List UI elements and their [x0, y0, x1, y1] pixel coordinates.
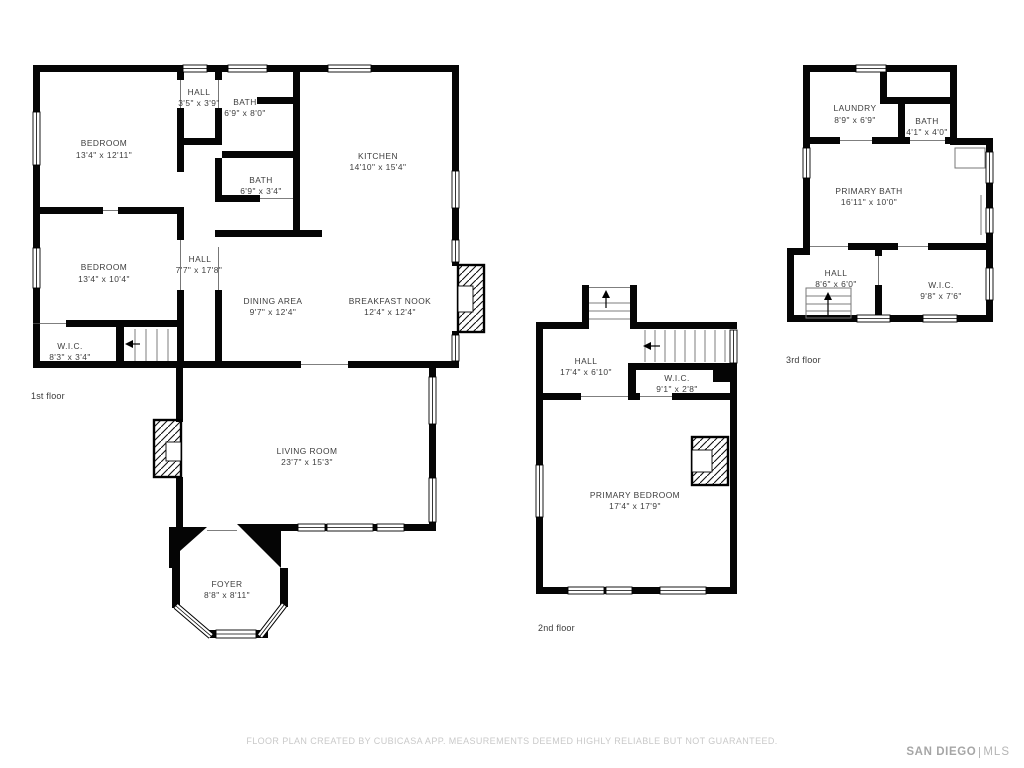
logo-separator	[979, 747, 980, 758]
room-label-dining: DINING AREA	[244, 296, 303, 306]
room-label-hall-third: HALL	[825, 268, 848, 278]
room-dims-bedroom-lower: 13'4" x 10'4"	[78, 274, 130, 284]
second-floor-label: 2nd floor	[538, 623, 575, 633]
room-dims-nook: 12'4" x 12'4"	[364, 307, 416, 317]
room-dims-foyer: 8'8" x 8'11"	[204, 590, 250, 600]
first-floor-label: 1st floor	[31, 391, 65, 401]
sandiego-mls-logo: SAN DIEGO MLS	[906, 746, 1010, 758]
third-floor-stairs	[806, 288, 851, 318]
breakfast-nook-bay	[458, 265, 484, 332]
floor-plan-drawing: BEDROOM 13'4" x 12'11" HALL 3'5" x 3'9" …	[0, 0, 1024, 768]
room-label-laundry: LAUNDRY	[833, 103, 876, 113]
room-label-living: LIVING ROOM	[277, 446, 338, 456]
room-dims-wic-first: 8'3" x 3'4"	[49, 352, 91, 362]
room-label-nook: BREAKFAST NOOK	[349, 296, 431, 306]
room-label-wic-first: W.I.C.	[57, 341, 83, 351]
room-dims-laundry: 8'9" x 6'9"	[834, 115, 876, 125]
room-dims-kitchen: 14'10" x 15'4"	[350, 162, 407, 172]
logo-brand-text: SAN DIEGO	[906, 746, 976, 758]
floor-plan-page: BEDROOM 13'4" x 12'11" HALL 3'5" x 3'9" …	[0, 0, 1024, 768]
room-label-wic-third: W.I.C.	[928, 280, 954, 290]
first-floor-plan: BEDROOM 13'4" x 12'11" HALL 3'5" x 3'9" …	[31, 65, 484, 638]
stair-left-arrow-icon	[643, 342, 651, 350]
second-floor-door-openings	[581, 288, 672, 397]
room-label-hall-small: HALL	[188, 87, 211, 97]
room-label-bath-top: BATH	[233, 97, 257, 107]
third-floor-label: 3rd floor	[786, 355, 821, 365]
room-label-bedroom-top: BEDROOM	[81, 138, 127, 148]
room-dims-bedroom-top: 13'4" x 12'11"	[76, 150, 132, 160]
second-floor-stairs-up	[589, 290, 630, 319]
room-label-hall-main: HALL	[189, 254, 212, 264]
room-label-hall-second: HALL	[575, 356, 598, 366]
room-label-bath-third: BATH	[915, 116, 939, 126]
room-label-primary-bedroom: PRIMARY BEDROOM	[590, 490, 680, 500]
room-dims-hall-small: 3'5" x 3'9"	[178, 98, 220, 108]
room-dims-bath-mid: 6'9" x 3'4"	[240, 186, 282, 196]
room-dims-hall-main: 7'7" x 17'8"	[176, 265, 223, 275]
room-label-bath-mid: BATH	[249, 175, 273, 185]
bedroom-fireplace	[692, 437, 728, 485]
stair-arrow-icon	[125, 340, 133, 348]
second-floor-stairs-down	[643, 330, 725, 362]
disclaimer-text: FLOOR PLAN CREATED BY CUBICASA APP. MEAS…	[0, 736, 1024, 746]
stair-up-arrow-icon	[602, 290, 610, 298]
room-dims-bath-top: 6'9" x 8'0"	[224, 108, 266, 118]
room-dims-wic-third: 9'8" x 7'6"	[920, 291, 962, 301]
room-dims-hall-third: 8'6" x 6'0"	[815, 279, 857, 289]
room-label-wic-second: W.I.C.	[664, 373, 690, 383]
room-dims-bath-third: 4'1" x 4'0"	[906, 127, 948, 137]
third-floor-plan: LAUNDRY 8'9" x 6'9" BATH 4'1" x 4'0" PRI…	[786, 65, 993, 365]
foyer-corner-right	[237, 524, 281, 568]
room-dims-living: 23'7" x 15'3"	[281, 457, 333, 467]
room-dims-primary-bath: 16'11" x 10'0"	[841, 197, 897, 207]
primary-bath-fixtures	[955, 148, 985, 235]
room-label-primary-bath: PRIMARY BATH	[835, 186, 902, 196]
foyer-corner-left	[180, 527, 207, 551]
second-floor-plan: HALL 17'4" x 6'10" W.I.C. 9'1" x 2'8" PR…	[536, 285, 737, 633]
logo-suffix-text: MLS	[983, 746, 1010, 758]
room-dims-dining: 9'7" x 12'4"	[250, 307, 297, 317]
living-room-fireplace	[154, 420, 181, 477]
room-dims-wic-second: 9'1" x 2'8"	[656, 384, 698, 394]
room-label-kitchen: KITCHEN	[358, 151, 398, 161]
first-floor-stairs	[125, 329, 168, 361]
room-label-bedroom-lower: BEDROOM	[81, 262, 127, 272]
room-label-foyer: FOYER	[211, 579, 242, 589]
room-dims-primary-bedroom: 17'4" x 17'9"	[609, 501, 661, 511]
third-floor-door-openings	[810, 141, 945, 286]
room-dims-hall-second: 17'4" x 6'10"	[560, 367, 612, 377]
